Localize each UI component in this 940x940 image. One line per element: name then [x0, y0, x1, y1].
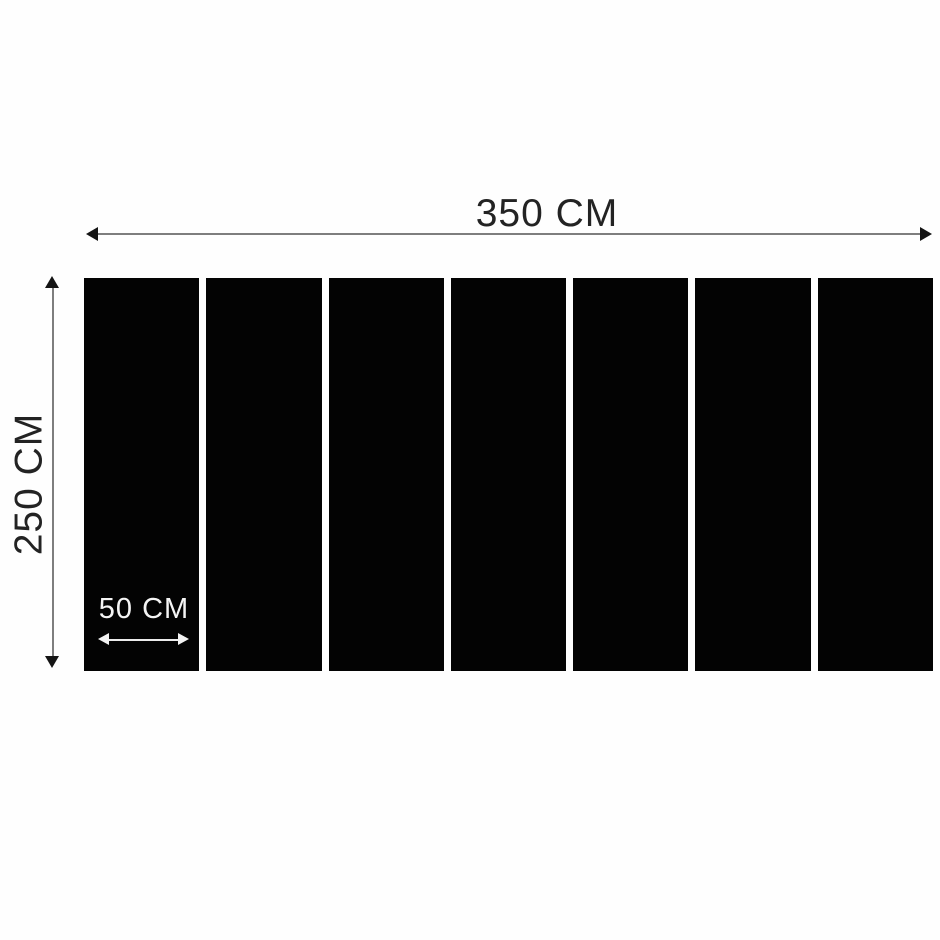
- panel: [451, 278, 566, 671]
- arrowhead-left-icon: [86, 227, 98, 241]
- arrowhead-right-icon: [920, 227, 932, 241]
- total-height-label: 250 CM: [10, 413, 49, 556]
- panels: [84, 278, 933, 671]
- panel: [206, 278, 321, 671]
- arrowhead-up-icon: [45, 276, 59, 288]
- panel: [818, 278, 933, 671]
- total-width-label: 350 CM: [476, 194, 619, 233]
- panel: [573, 278, 688, 671]
- arrowhead-white-right-icon: [178, 633, 189, 645]
- width-arrow-line: [97, 233, 923, 235]
- arrowhead-down-icon: [45, 656, 59, 668]
- panel-width-arrow-line: [107, 639, 180, 641]
- panel-width-label: 50 CM: [99, 595, 189, 624]
- panel: [695, 278, 810, 671]
- height-arrow-line: [52, 286, 54, 658]
- dimension-diagram: 350 CM 250 CM 50 CM: [0, 0, 940, 940]
- arrowhead-white-left-icon: [98, 633, 109, 645]
- panel: [329, 278, 444, 671]
